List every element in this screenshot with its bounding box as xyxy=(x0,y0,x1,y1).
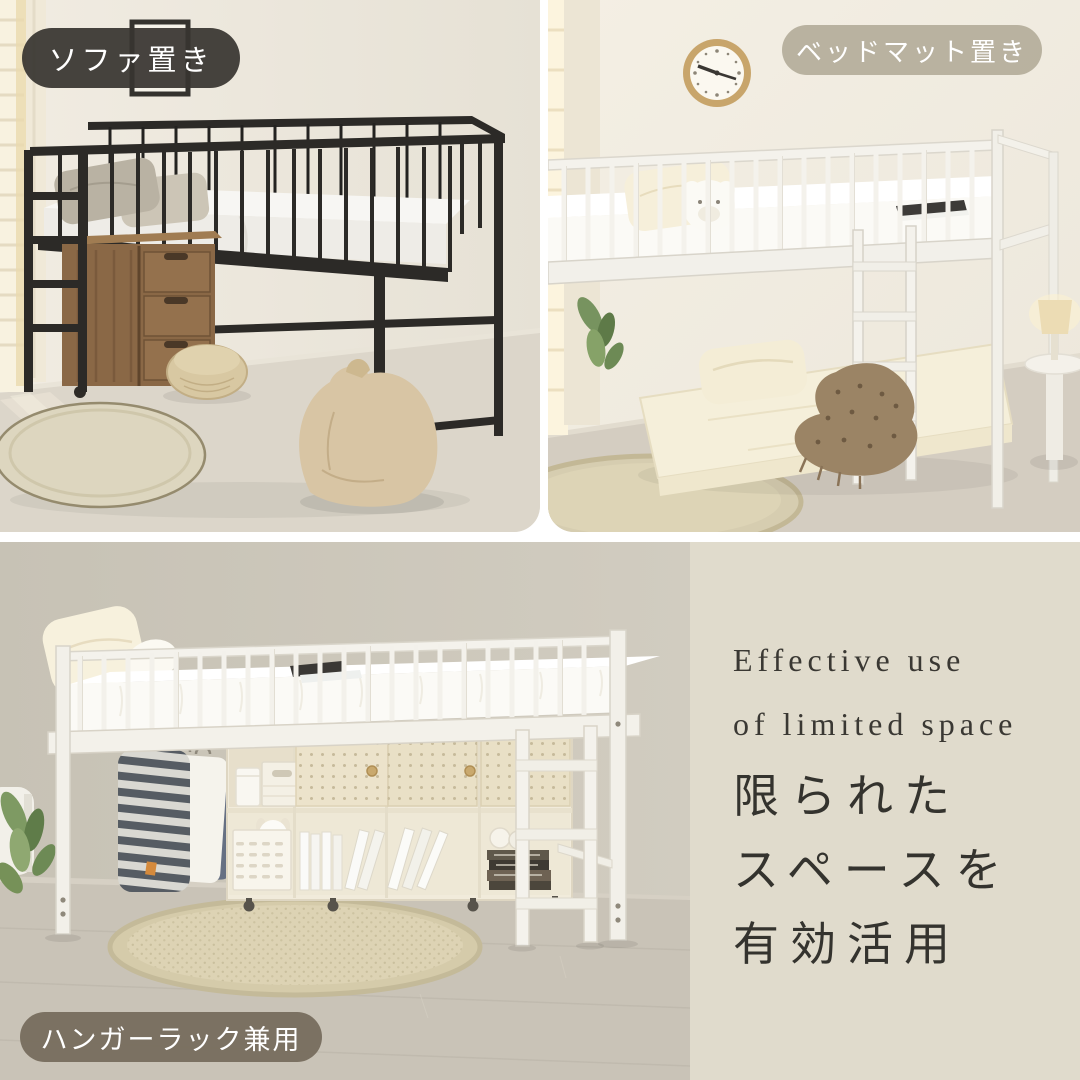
badge-sofa: ソファ置き xyxy=(22,28,240,88)
round-rug xyxy=(110,899,480,995)
panel-heading-en: Effective use of limited space xyxy=(733,628,1017,756)
canister xyxy=(236,768,260,806)
photo-sofa-loft-bed: ソファ置き xyxy=(0,0,540,532)
bed-left-leg xyxy=(56,646,70,934)
panel-jp-line3: 有効活用 xyxy=(733,908,1012,982)
badge-bedmat: ベッドマット置き xyxy=(782,25,1042,75)
pegboard-door xyxy=(388,736,477,806)
badge-hanger: ハンガーラック兼用 xyxy=(20,1012,322,1062)
photo-bedmat-loft-bed: ベッドマット置き xyxy=(548,0,1080,532)
bedmat-scene xyxy=(548,0,1080,532)
panel-en-line1: Effective use xyxy=(733,628,1017,692)
panel-en-line2: of limited space xyxy=(733,692,1017,756)
woven-pouf xyxy=(163,345,251,404)
panel-heading-jp: 限られた スペースを 有効活用 xyxy=(733,760,1012,982)
photo-hanger-loft-bed: ハンガーラック兼用 xyxy=(0,542,690,1080)
hanger-scene xyxy=(0,542,690,1080)
panel-jp-line1: 限られた xyxy=(733,760,1012,834)
product-feature-image: ソファ置き xyxy=(0,0,1080,1080)
bed-corner-post xyxy=(992,130,1003,508)
wall-clock xyxy=(683,39,751,107)
text-panel: Effective use of limited space 限られた スペース… xyxy=(690,542,1080,1080)
tag xyxy=(145,861,157,875)
panel-jp-line2: スペースを xyxy=(733,834,1012,908)
round-rug xyxy=(0,403,205,507)
hanger-clothes xyxy=(118,741,231,892)
perforated-bin xyxy=(233,830,291,890)
bed-right-leg xyxy=(610,630,626,940)
